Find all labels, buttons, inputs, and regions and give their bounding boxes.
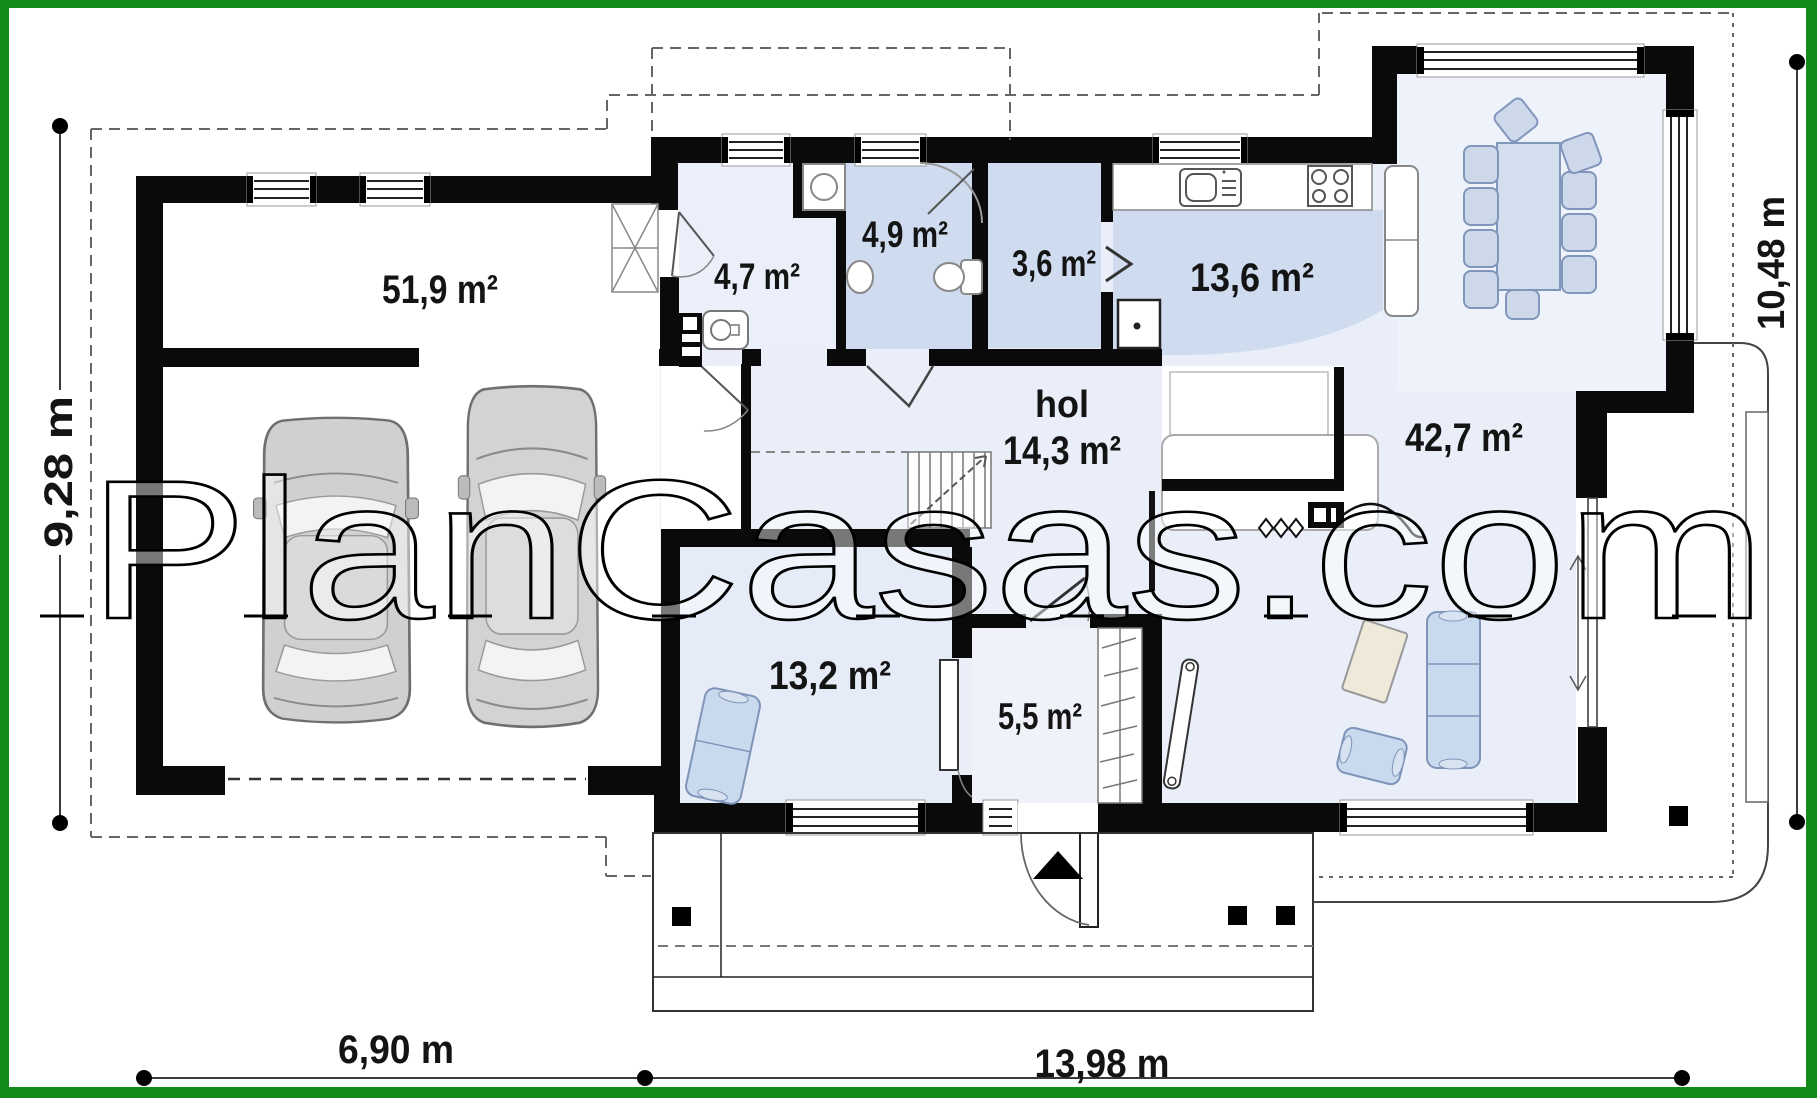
svg-text:10,48 m: 10,48 m [1751, 196, 1793, 330]
svg-text:PlanCasas.com: PlanCasas.com [88, 439, 1766, 660]
svg-text:13,98 m: 13,98 m [1035, 1042, 1170, 1086]
svg-text:hol: hol [1035, 384, 1089, 426]
svg-text:13,2 m²: 13,2 m² [769, 654, 891, 698]
svg-text:3,6 m²: 3,6 m² [1012, 243, 1096, 284]
svg-text:13,6 m²: 13,6 m² [1190, 256, 1314, 300]
svg-text:5,5 m²: 5,5 m² [998, 696, 1082, 737]
svg-text:6,90 m: 6,90 m [338, 1028, 454, 1072]
svg-text:4,9 m²: 4,9 m² [862, 214, 948, 255]
svg-text:9,28 m: 9,28 m [37, 396, 81, 548]
svg-text:4,7 m²: 4,7 m² [714, 256, 800, 297]
svg-text:51,9 m²: 51,9 m² [382, 268, 498, 312]
